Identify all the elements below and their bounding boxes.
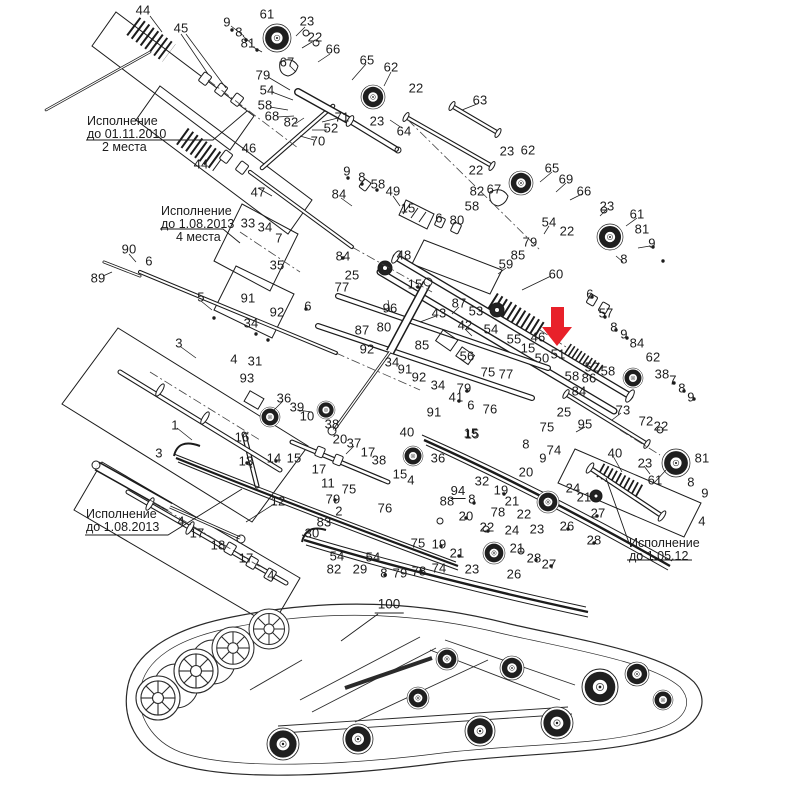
diagram-stage: 4445988161232266677954586882715270656222… (0, 0, 800, 800)
springs (133, 26, 640, 492)
overview-sprockets (136, 609, 289, 720)
exploded-view (46, 12, 701, 641)
overview-struts (250, 637, 575, 733)
diagram-art (0, 0, 800, 800)
red-arrow (542, 307, 572, 346)
shafts (46, 52, 662, 583)
overview-assembly (126, 604, 702, 775)
assembly-ref-label: 100 (375, 597, 404, 614)
fasteners (212, 28, 695, 576)
